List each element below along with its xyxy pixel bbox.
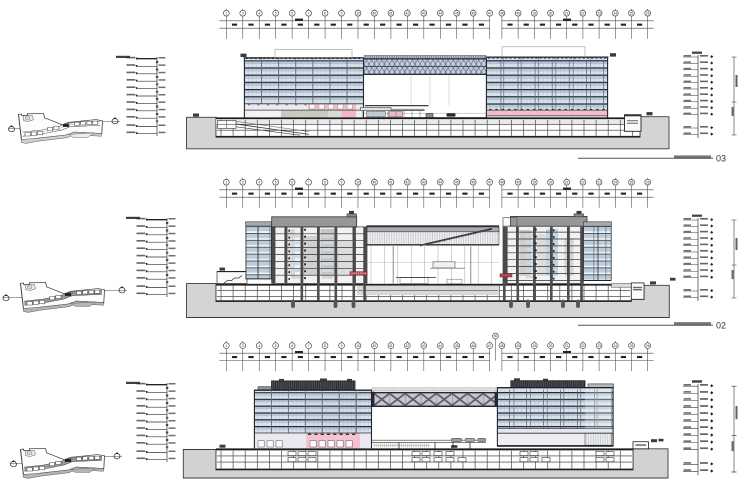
svg-text:4: 4 bbox=[258, 11, 260, 15]
svg-text:25: 25 bbox=[630, 180, 634, 184]
svg-text:20: 20 bbox=[549, 11, 553, 15]
svg-text:41: 41 bbox=[389, 11, 393, 15]
svg-text:19: 19 bbox=[533, 180, 537, 184]
svg-text:8: 8 bbox=[324, 344, 326, 348]
svg-text:42: 42 bbox=[406, 180, 410, 184]
svg-text:41: 41 bbox=[389, 180, 393, 184]
svg-text:03: 03 bbox=[716, 154, 726, 164]
svg-text:21: 21 bbox=[565, 180, 569, 184]
svg-text:3: 3 bbox=[242, 180, 244, 184]
svg-text:47: 47 bbox=[488, 344, 492, 348]
svg-text:45: 45 bbox=[455, 344, 459, 348]
svg-text:6: 6 bbox=[291, 180, 293, 184]
svg-text:8: 8 bbox=[324, 180, 326, 184]
svg-text:3: 3 bbox=[242, 11, 244, 15]
svg-text:46: 46 bbox=[471, 11, 475, 15]
svg-text:21: 21 bbox=[565, 11, 569, 15]
svg-text:20: 20 bbox=[549, 344, 553, 348]
svg-text:45: 45 bbox=[455, 180, 459, 184]
svg-text:26: 26 bbox=[646, 344, 650, 348]
svg-text:43: 43 bbox=[422, 344, 426, 348]
svg-text:5: 5 bbox=[275, 180, 277, 184]
svg-text:24: 24 bbox=[614, 180, 618, 184]
svg-text:24: 24 bbox=[614, 11, 618, 15]
svg-text:10: 10 bbox=[356, 11, 360, 15]
svg-text:45: 45 bbox=[455, 11, 459, 15]
svg-text:49: 49 bbox=[516, 11, 520, 15]
svg-text:47: 47 bbox=[488, 180, 492, 184]
svg-text:49: 49 bbox=[516, 344, 520, 348]
svg-text:7: 7 bbox=[308, 344, 310, 348]
svg-text:23: 23 bbox=[597, 180, 601, 184]
svg-text:26: 26 bbox=[646, 11, 650, 15]
svg-text:48: 48 bbox=[500, 11, 504, 15]
svg-text:44: 44 bbox=[439, 344, 443, 348]
svg-text:42: 42 bbox=[406, 344, 410, 348]
svg-text:19: 19 bbox=[533, 344, 537, 348]
svg-text:19: 19 bbox=[533, 11, 537, 15]
svg-text:26: 26 bbox=[646, 180, 650, 184]
svg-text:46: 46 bbox=[471, 344, 475, 348]
svg-text:44: 44 bbox=[439, 180, 443, 184]
svg-text:02: 02 bbox=[716, 321, 726, 331]
svg-text:9: 9 bbox=[341, 344, 343, 348]
svg-text:40: 40 bbox=[373, 11, 377, 15]
svg-text:5: 5 bbox=[275, 11, 277, 15]
svg-text:41: 41 bbox=[389, 344, 393, 348]
svg-text:1: 1 bbox=[225, 11, 227, 15]
svg-text:23: 23 bbox=[597, 344, 601, 348]
svg-text:25: 25 bbox=[630, 344, 634, 348]
svg-text:5: 5 bbox=[275, 344, 277, 348]
svg-text:24: 24 bbox=[614, 344, 618, 348]
svg-text:9: 9 bbox=[341, 180, 343, 184]
svg-text:20: 20 bbox=[549, 180, 553, 184]
svg-text:10: 10 bbox=[356, 344, 360, 348]
svg-text:21: 21 bbox=[565, 344, 569, 348]
svg-text:7: 7 bbox=[308, 180, 310, 184]
svg-text:44: 44 bbox=[439, 11, 443, 15]
svg-text:42: 42 bbox=[406, 11, 410, 15]
svg-text:40: 40 bbox=[373, 180, 377, 184]
svg-text:46: 46 bbox=[471, 180, 475, 184]
svg-text:22: 22 bbox=[581, 11, 585, 15]
svg-text:6: 6 bbox=[291, 11, 293, 15]
svg-text:49: 49 bbox=[516, 180, 520, 184]
svg-text:48: 48 bbox=[500, 180, 504, 184]
svg-text:22: 22 bbox=[581, 344, 585, 348]
svg-text:10: 10 bbox=[356, 180, 360, 184]
svg-text:1: 1 bbox=[225, 180, 227, 184]
svg-text:23: 23 bbox=[597, 11, 601, 15]
svg-text:4: 4 bbox=[258, 344, 260, 348]
svg-text:43: 43 bbox=[422, 180, 426, 184]
svg-text:9: 9 bbox=[341, 11, 343, 15]
svg-text:48: 48 bbox=[500, 344, 504, 348]
svg-text:7: 7 bbox=[308, 11, 310, 15]
svg-text:22: 22 bbox=[581, 180, 585, 184]
svg-text:6: 6 bbox=[291, 344, 293, 348]
svg-text:1: 1 bbox=[225, 344, 227, 348]
svg-text:43: 43 bbox=[422, 11, 426, 15]
svg-text:46: 46 bbox=[494, 334, 498, 338]
svg-text:40: 40 bbox=[373, 344, 377, 348]
svg-text:4: 4 bbox=[258, 180, 260, 184]
svg-text:8: 8 bbox=[324, 11, 326, 15]
svg-text:3: 3 bbox=[242, 344, 244, 348]
svg-text:25: 25 bbox=[630, 11, 634, 15]
svg-text:47: 47 bbox=[488, 11, 492, 15]
